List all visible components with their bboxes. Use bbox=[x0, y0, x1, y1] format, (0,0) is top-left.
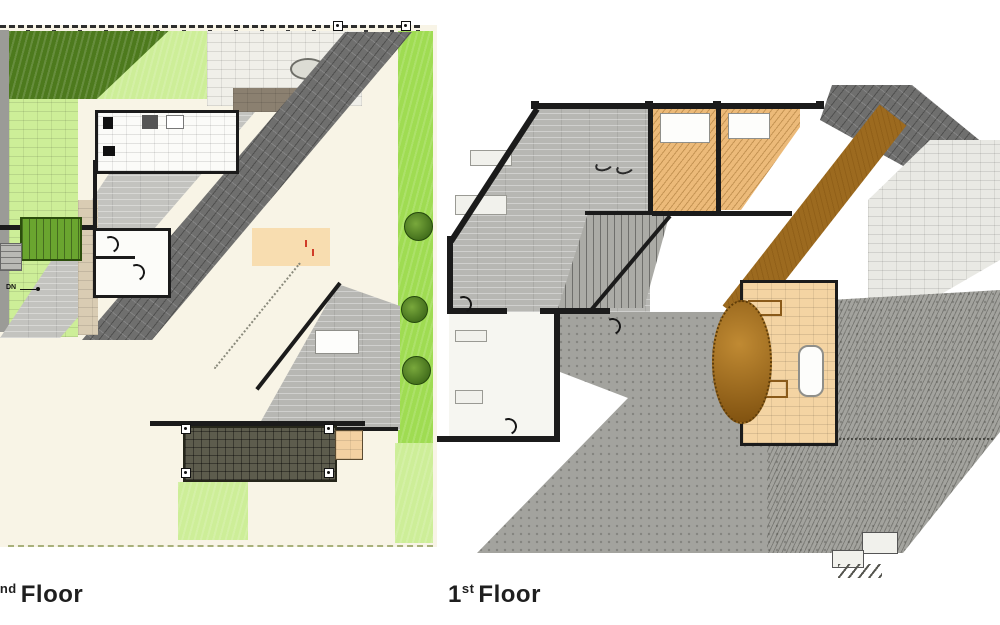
ground-hatch bbox=[838, 564, 882, 578]
furniture bbox=[455, 390, 483, 404]
bathtub-icon bbox=[798, 345, 824, 397]
label-number: 1 bbox=[448, 581, 462, 608]
furniture bbox=[455, 330, 487, 342]
wall-node bbox=[713, 101, 721, 109]
first-floor-plan: 1stFloor bbox=[0, 0, 1000, 625]
wall-node bbox=[645, 101, 653, 109]
wall bbox=[437, 436, 560, 442]
wall bbox=[652, 211, 792, 216]
first-floor-label: 1stFloor bbox=[448, 581, 541, 609]
label-ordinal: st bbox=[462, 581, 475, 596]
floor-plan-image: DN 2ndFloor bbox=[0, 0, 1000, 625]
wall bbox=[540, 308, 610, 314]
tree-icon bbox=[712, 300, 772, 424]
wall bbox=[554, 308, 560, 440]
wall-node bbox=[531, 101, 539, 109]
wall-top bbox=[533, 103, 823, 109]
label-word: Floor bbox=[478, 581, 541, 608]
bed-icon bbox=[728, 113, 770, 139]
wall-node bbox=[816, 101, 824, 109]
wall bbox=[447, 236, 453, 314]
stepping-stone bbox=[862, 532, 898, 554]
bed-icon bbox=[660, 113, 710, 143]
wall bbox=[716, 109, 721, 215]
wall bbox=[648, 109, 653, 215]
